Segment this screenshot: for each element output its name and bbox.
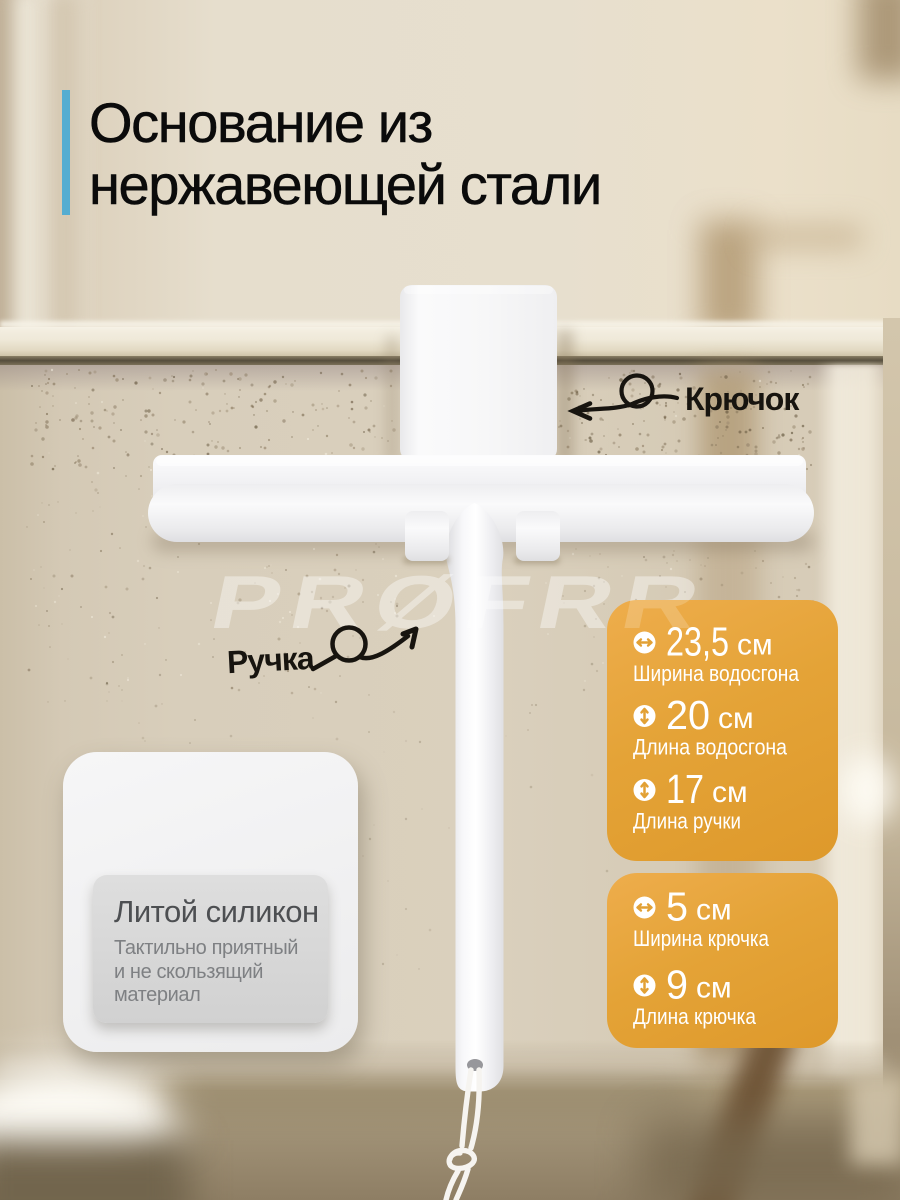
svg-text:PRØFRR: PRØFRR	[203, 561, 716, 644]
